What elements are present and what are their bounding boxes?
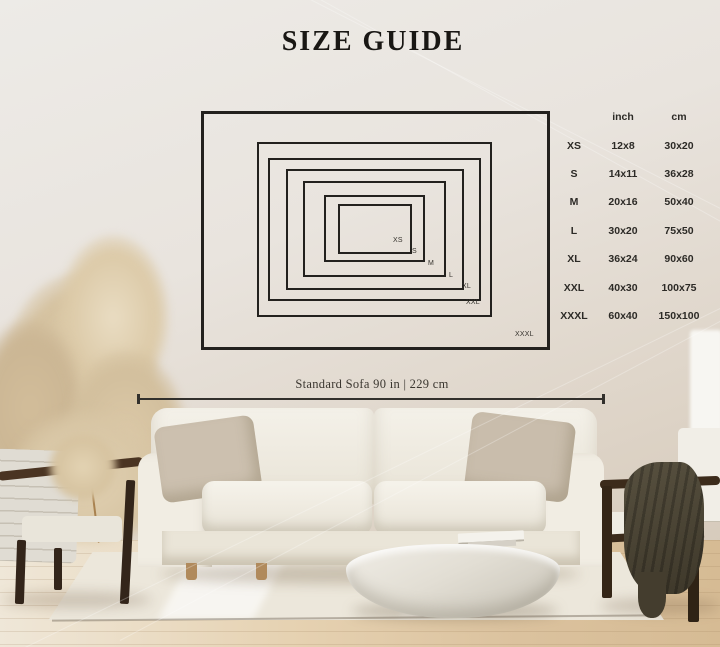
size-table-cell: 12x8 xyxy=(599,140,647,152)
size-table-cell: XXXL xyxy=(549,310,599,322)
size-table-cell: XL xyxy=(549,253,599,265)
size-table-cell: 30x20 xyxy=(647,140,711,152)
size-table-cell: 36x24 xyxy=(599,253,647,265)
size-rect-label-m: M xyxy=(428,260,434,267)
pampas-plume-front xyxy=(48,432,118,502)
size-table-cell: XS xyxy=(549,140,599,152)
size-table: inch cm XS 12x8 30x20 S 14x11 36x28 M 20… xyxy=(549,103,711,330)
size-rect-label-xxxl: XXXL xyxy=(515,331,534,338)
size-table-cell: 40x30 xyxy=(599,282,647,294)
coffee-table xyxy=(340,526,570,626)
size-rect-label-xl: XL xyxy=(462,283,471,290)
size-table-cell: 90x60 xyxy=(647,253,711,265)
size-table-cell: L xyxy=(549,225,599,237)
size-table-cell: 14x11 xyxy=(599,168,647,180)
chair-leg xyxy=(54,548,62,590)
throw-blanket-tail xyxy=(638,572,666,618)
sofa-dimension-label: Standard Sofa 90 in | 229 cm xyxy=(26,377,718,392)
size-table-cell: 20x16 xyxy=(599,196,647,208)
chair-seat-cushion xyxy=(22,516,122,542)
size-table-cell: 150x100 xyxy=(647,310,711,322)
size-table-cell: S xyxy=(549,168,599,180)
size-table-cell: 50x40 xyxy=(647,196,711,208)
chair-leg xyxy=(602,486,612,598)
size-rect-label-s: S xyxy=(412,248,417,255)
size-table-cell: 100x75 xyxy=(647,282,711,294)
right-armchair xyxy=(596,412,720,622)
size-rect-xs xyxy=(338,204,412,254)
chair-leg xyxy=(120,480,135,604)
size-guide-mockup: SIZE GUIDE XS S M L XL XXL XXXL inch cm … xyxy=(0,0,720,647)
size-table-cell: 75x50 xyxy=(647,225,711,237)
size-table-cell: 30x20 xyxy=(599,225,647,237)
size-table-cell: 36x28 xyxy=(647,168,711,180)
chair-leg xyxy=(15,540,26,604)
size-table-cell: M xyxy=(549,196,599,208)
size-table-header-inch: inch xyxy=(599,111,647,123)
size-table-header-cm: cm xyxy=(647,111,711,123)
sofa-dimension-line xyxy=(137,398,605,400)
size-table-cell: XXL xyxy=(549,282,599,294)
coffee-table-bowl xyxy=(346,544,560,618)
size-rect-label-l: L xyxy=(449,272,453,279)
size-rect-label-xxl: XXL xyxy=(466,299,480,306)
page-title: SIZE GUIDE xyxy=(26,26,720,58)
size-table-cell: 60x40 xyxy=(599,310,647,322)
size-rect-label-xs: XS xyxy=(393,237,403,244)
